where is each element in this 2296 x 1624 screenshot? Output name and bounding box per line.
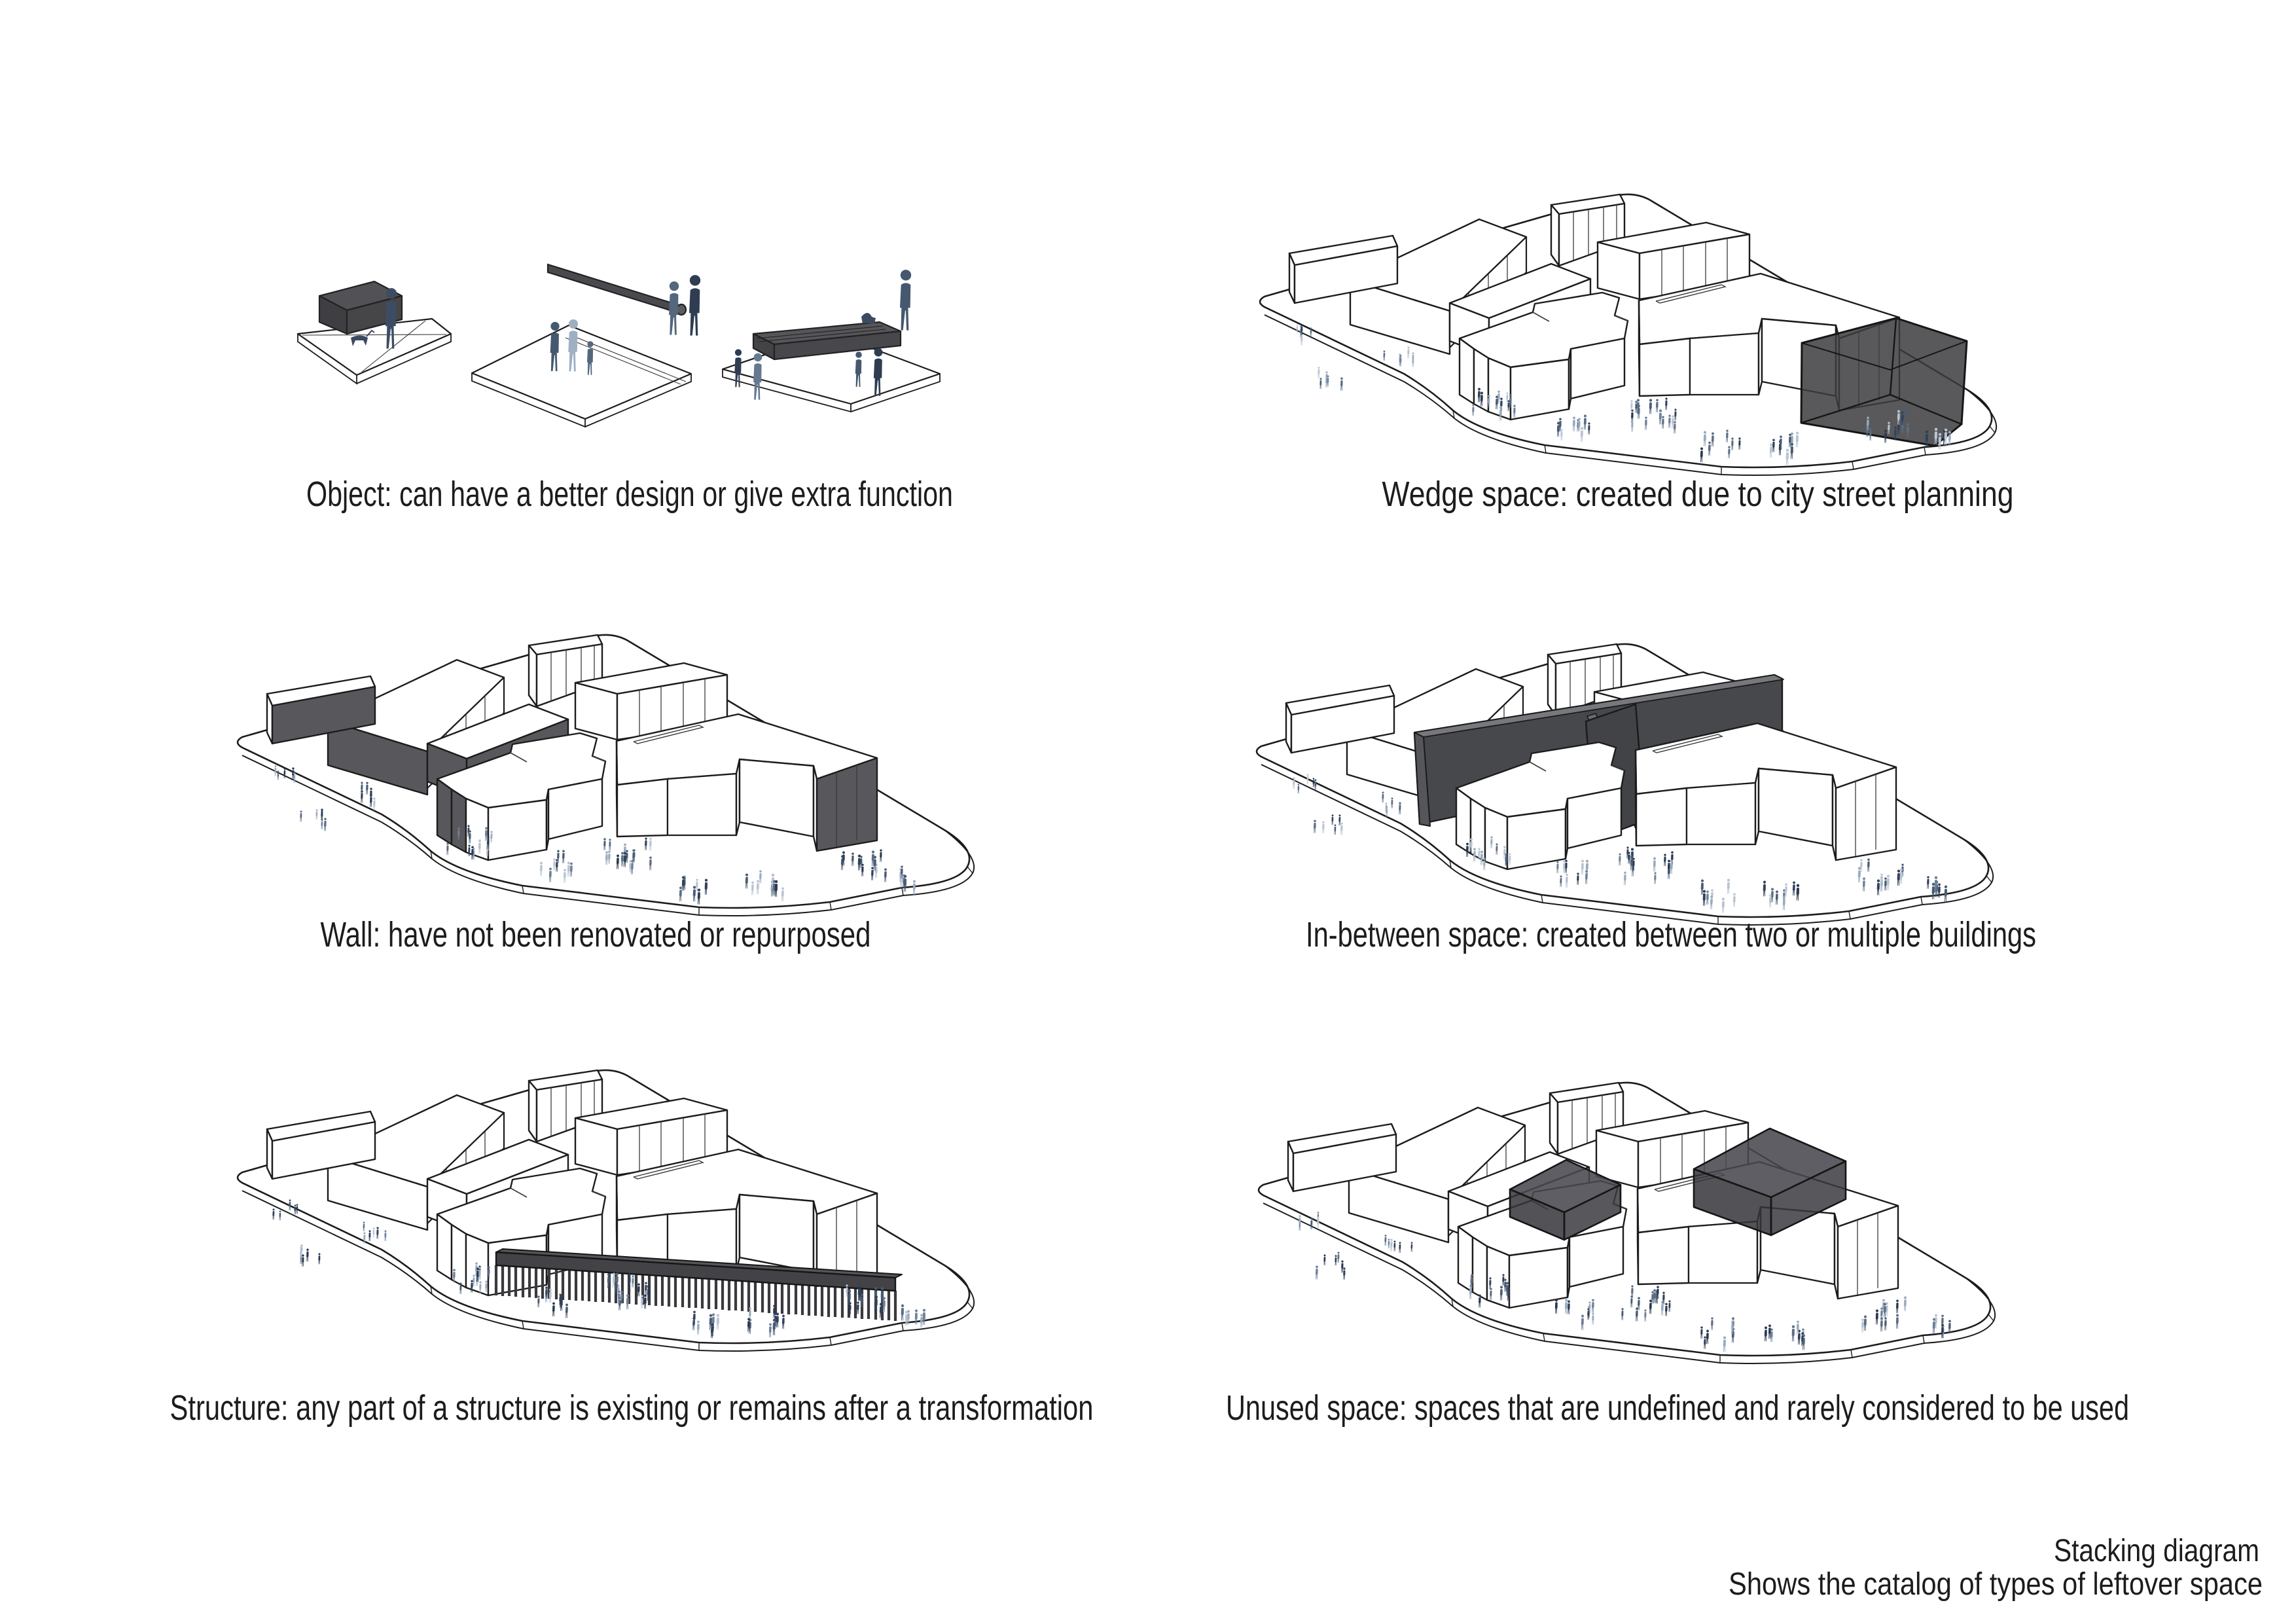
svg-text:Wall: have not been renovated: Wall: have not been renovated or repurpo…	[321, 915, 871, 954]
svg-text:Unused space: spaces that are: Unused space: spaces that are undefined …	[1226, 1388, 2129, 1428]
svg-text:Wedge space: created due to ci: Wedge space: created due to city street …	[1382, 475, 2014, 514]
svg-text:Shows the catalog of types of: Shows the catalog of types of leftover s…	[1729, 1567, 2263, 1602]
svg-text:Object: can have a better desi: Object: can have a better design or give…	[306, 475, 953, 514]
svg-text:Stacking diagram: Stacking diagram	[2054, 1534, 2259, 1568]
svg-text:Structure: any part of a struc: Structure: any part of a structure is ex…	[170, 1388, 1094, 1428]
svg-text:In-between space: created betw: In-between space: created between two or…	[1306, 915, 2036, 954]
